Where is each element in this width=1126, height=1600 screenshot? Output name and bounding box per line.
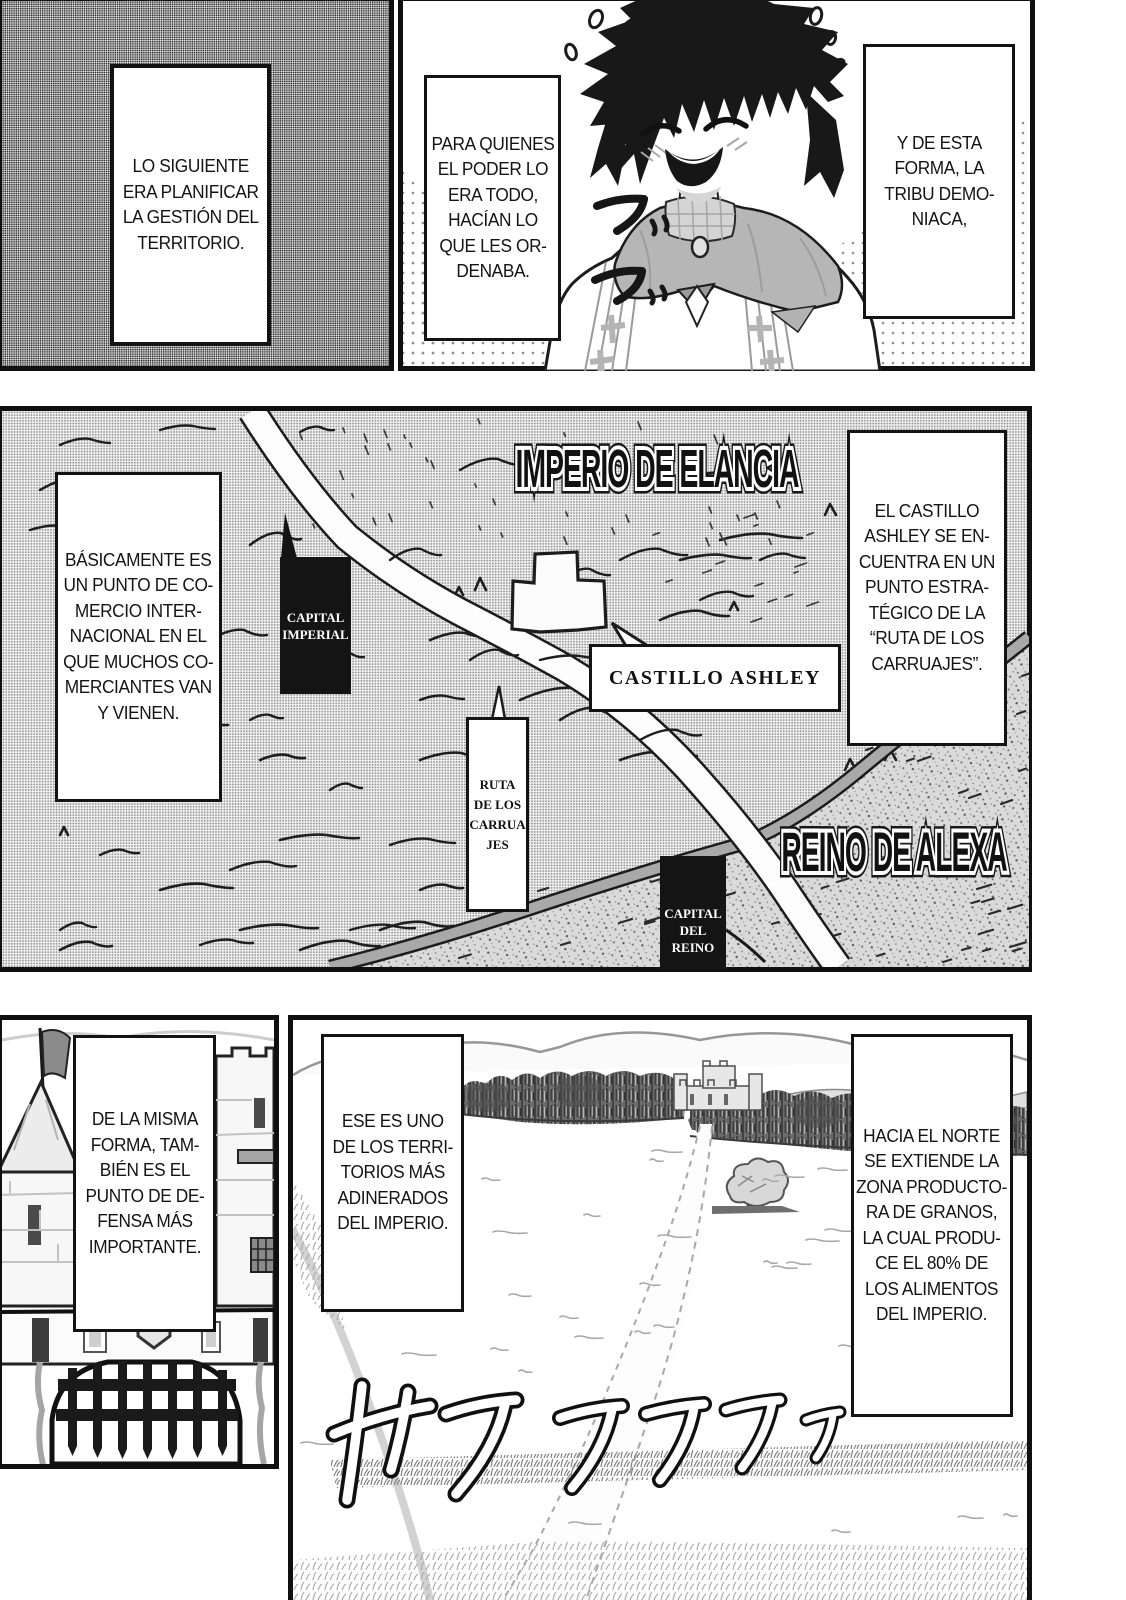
svg-text:IMPERIO DE ELANCIA: IMPERIO DE ELANCIA: [516, 439, 800, 499]
svg-text:REINO DE ALEXA: REINO DE ALEXA: [781, 822, 1007, 884]
